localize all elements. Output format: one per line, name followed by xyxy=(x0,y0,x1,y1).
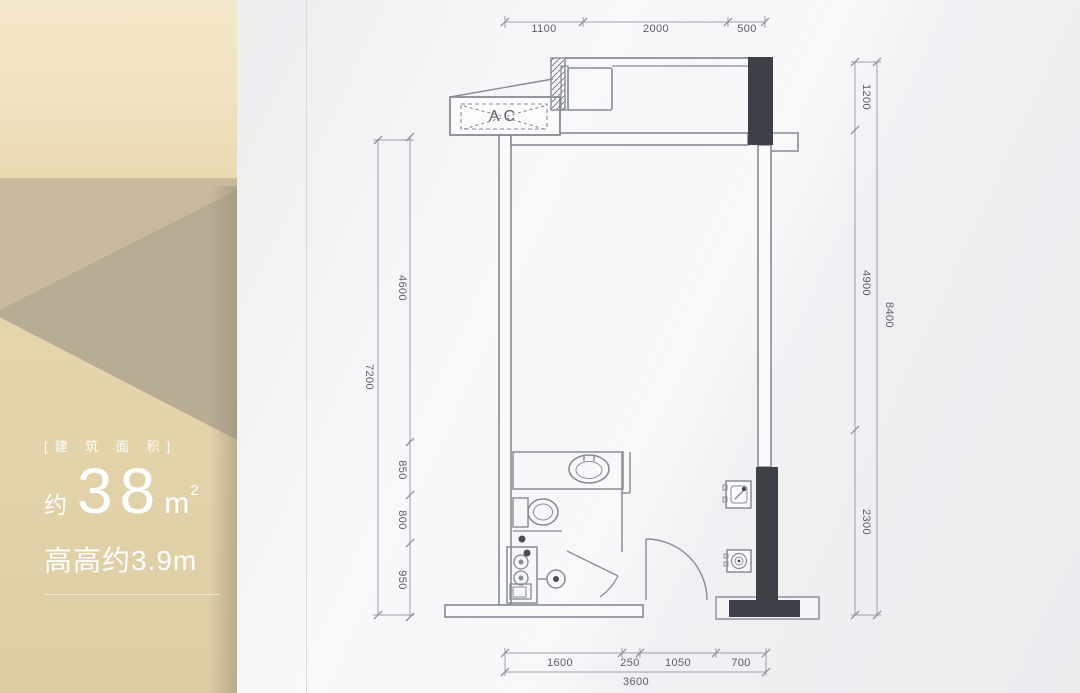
exterior-walls xyxy=(445,133,771,617)
dim-bottom-1: 1600 xyxy=(547,657,573,669)
ac-platform xyxy=(450,79,560,135)
bottom-wall xyxy=(445,605,643,617)
drain-dot xyxy=(524,550,531,557)
dim-left-4: 950 xyxy=(396,570,408,590)
dim-right-2: 4900 xyxy=(860,270,872,296)
dim-bottom-total: 3600 xyxy=(623,676,649,688)
floorplan-card: [建 筑 面 积] 约 38 m 2 高高约3.9m xyxy=(0,0,1080,693)
dim-left-total: 7200 xyxy=(363,364,375,390)
dim-bottom-3: 1050 xyxy=(665,657,691,669)
dim-bottom-4: 700 xyxy=(731,657,751,669)
dim-top-3: 500 xyxy=(737,23,757,35)
bay-equipment-box xyxy=(568,68,612,110)
dim-left-2: 850 xyxy=(396,460,408,480)
right-wall xyxy=(758,145,771,467)
dim-top-1: 1100 xyxy=(531,23,556,35)
toilet-icon xyxy=(528,499,558,525)
entry-door-icon xyxy=(646,539,707,600)
dim-left-1: 4600 xyxy=(396,275,408,301)
drain-dot xyxy=(519,536,526,543)
ac-text: AC xyxy=(489,108,519,126)
dim-left-3: 800 xyxy=(396,510,408,530)
bathroom-door-icon xyxy=(567,551,618,597)
entry xyxy=(646,481,751,600)
toilet-tank xyxy=(513,498,528,527)
dim-right-3: 2300 xyxy=(860,509,872,535)
dim-right-total: 8400 xyxy=(883,302,895,328)
left-wall xyxy=(499,135,511,605)
basin-counter xyxy=(513,452,623,489)
top-right-ledge xyxy=(771,133,798,151)
structural-column-top xyxy=(748,57,773,145)
sink-icon xyxy=(723,481,751,508)
structural-column-base xyxy=(729,600,800,617)
dim-right-1: 1200 xyxy=(860,84,872,110)
dim-bottom-2: 250 xyxy=(620,657,640,669)
floorplan-drawing xyxy=(0,0,1080,693)
bathroom xyxy=(507,452,630,603)
structural-column-bottom xyxy=(756,467,778,600)
meter-icon xyxy=(724,550,751,572)
dim-top-2: 2000 xyxy=(643,23,669,35)
